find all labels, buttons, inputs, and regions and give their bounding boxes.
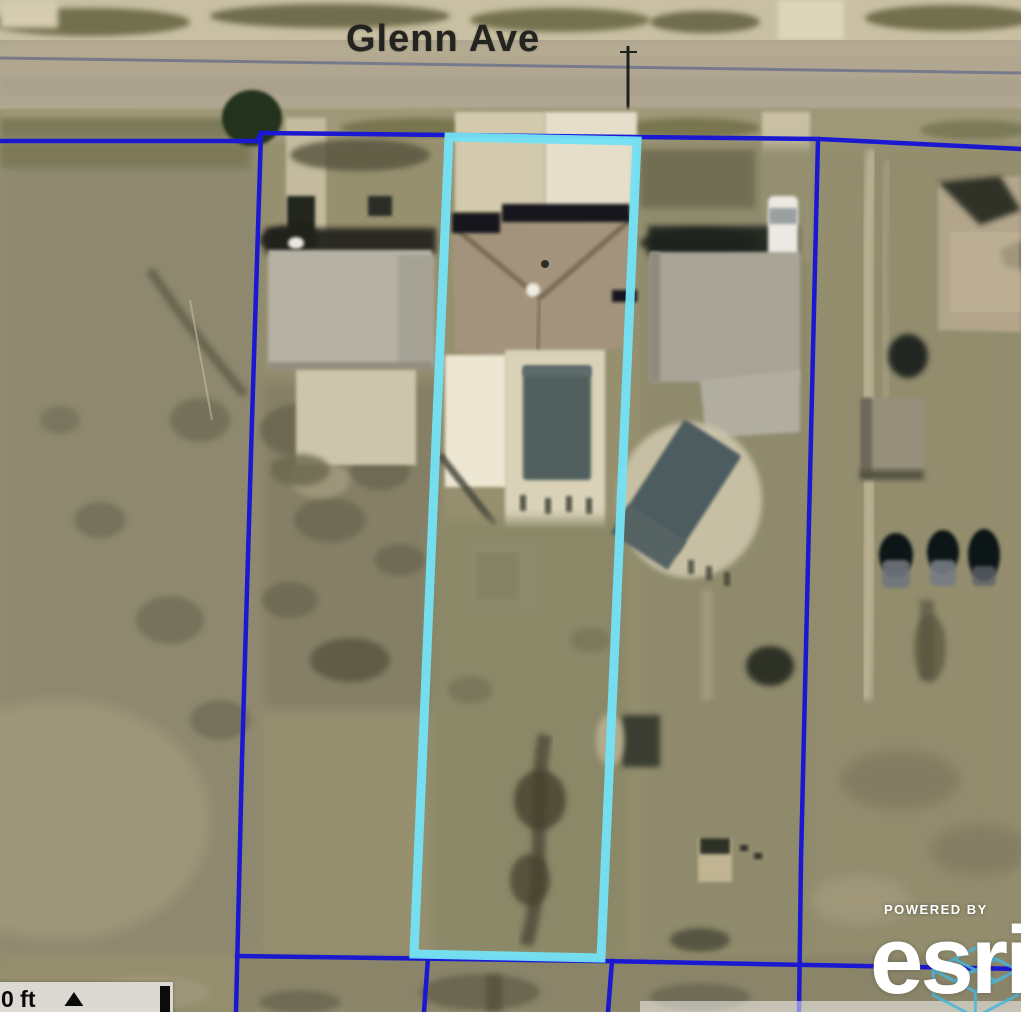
bush	[746, 646, 794, 686]
conifer-tree	[222, 90, 282, 146]
far-east-parcel	[810, 150, 1021, 960]
aerial-imagery	[0, 0, 1021, 1012]
tree	[888, 334, 928, 378]
scalebar-widget: 0 ft ▲	[0, 982, 173, 1012]
esri-logo[interactable]: esri	[870, 908, 1021, 1012]
scalebar-label: 0 ft	[1, 986, 36, 1012]
up-triangle-icon: ▲	[57, 987, 89, 1011]
pool	[523, 366, 591, 480]
street-label: Glenn Ave	[346, 18, 540, 61]
scalebar-end-bar	[160, 986, 170, 1012]
map-canvas[interactable]: Glenn Ave 0 ft ▲ POWERED BY esri	[0, 0, 1021, 1012]
west-field	[0, 140, 262, 955]
